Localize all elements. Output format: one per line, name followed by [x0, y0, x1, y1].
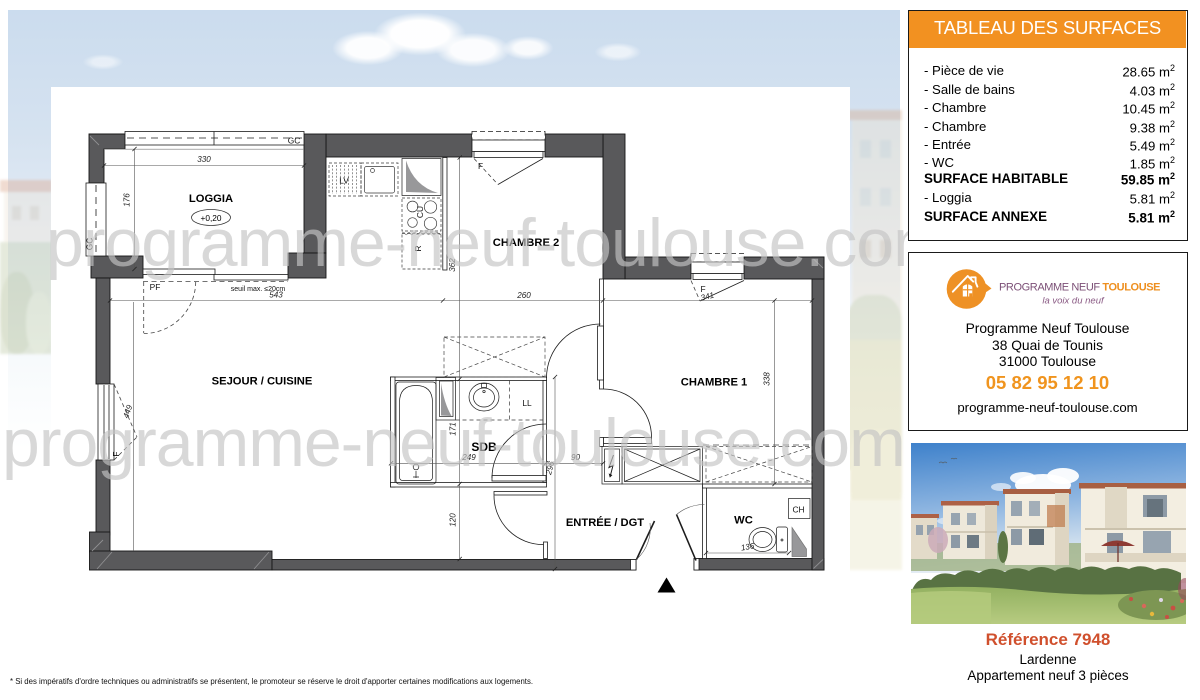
- svg-text:PROGRAMME NEUF TOULOUSE: PROGRAMME NEUF TOULOUSE: [999, 282, 1160, 294]
- svg-text:la voix du neuf: la voix du neuf: [1042, 296, 1105, 307]
